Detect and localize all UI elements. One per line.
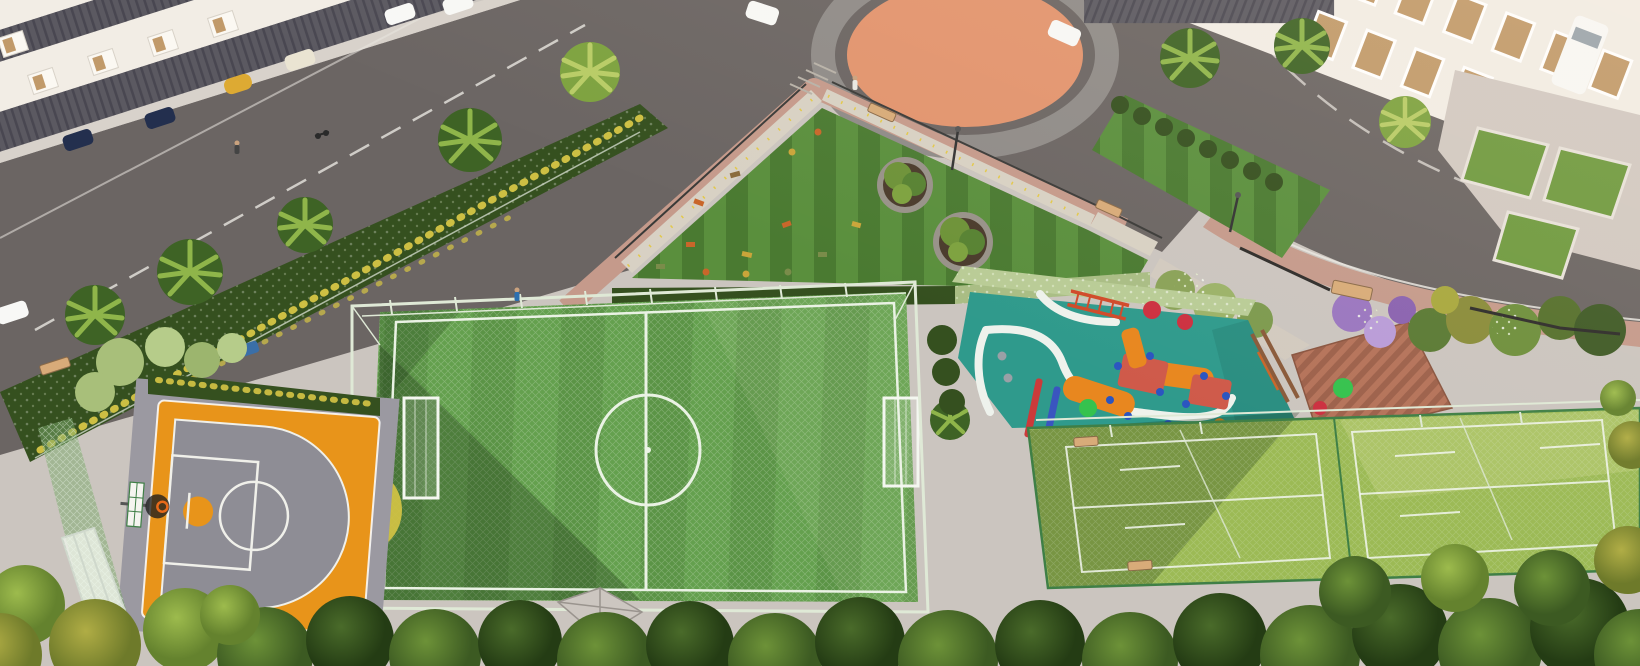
aerial-render-canvas	[0, 0, 1640, 666]
sunlight-overlay	[0, 0, 1640, 666]
aerial-scene	[0, 0, 1640, 666]
